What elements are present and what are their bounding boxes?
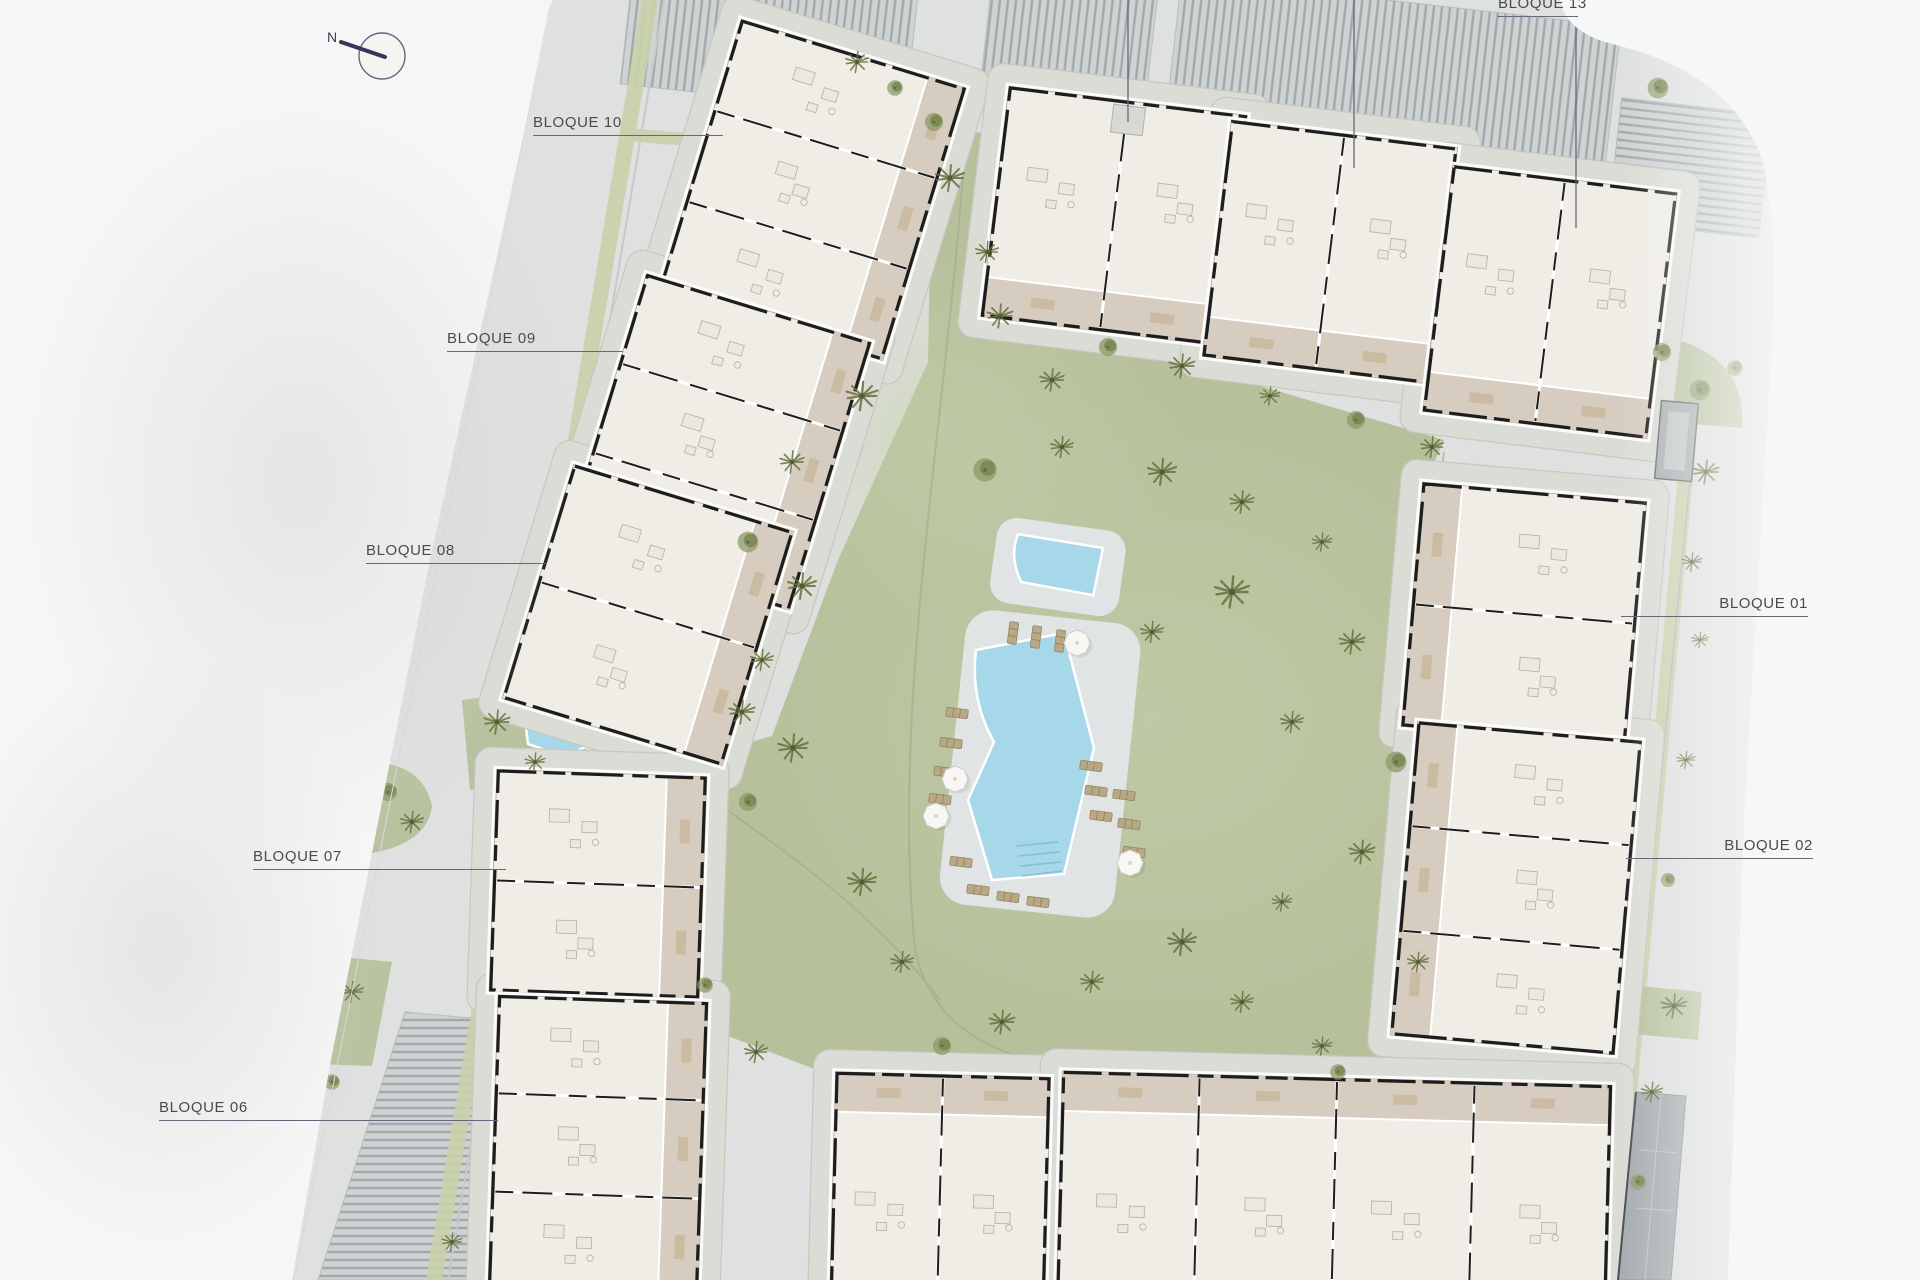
label-underline [1626,858,1813,859]
compass-north-label: N [327,29,338,45]
fade-east [1600,0,1920,1280]
building-building-south-2[interactable] [1054,1069,1614,1280]
building-bloque-06[interactable] [486,993,710,1280]
label-bloque-07[interactable]: BLOQUE 07 [253,848,506,870]
label-text: BLOQUE 10 [533,114,723,132]
label-underline [533,135,723,136]
label-underline [1621,616,1808,617]
label-bloque-09[interactable]: BLOQUE 09 [447,330,623,352]
label-text: BLOQUE 13 [1498,0,1578,13]
label-underline [1498,16,1578,17]
label-text: BLOQUE 08 [366,542,547,560]
label-bloque-06[interactable]: BLOQUE 06 [159,1099,498,1121]
label-bloque-02[interactable]: BLOQUE 02 [1626,837,1813,859]
label-bloque-13[interactable]: BLOQUE 13 [1498,0,1578,17]
label-underline [253,869,506,870]
site-plan-canvas: BLOQUE 10 BLOQUE 09 BLOQUE 08 BLOQUE 07 … [0,0,1920,1280]
label-bloque-10[interactable]: BLOQUE 10 [533,114,723,136]
label-text: BLOQUE 02 [1626,837,1813,855]
building-bloque-07[interactable] [487,767,709,1000]
label-underline [447,351,623,352]
label-text: BLOQUE 01 [1621,595,1808,613]
building-building-north-2[interactable] [1200,118,1460,386]
label-bloque-08[interactable]: BLOQUE 08 [366,542,547,564]
label-text: BLOQUE 07 [253,848,506,866]
label-underline [366,563,547,564]
building-building-south-1[interactable] [827,1070,1052,1280]
site-plan-svg [0,0,1920,1280]
label-text: BLOQUE 06 [159,1099,498,1117]
label-underline [159,1120,498,1121]
label-text: BLOQUE 09 [447,330,623,348]
label-bloque-01[interactable]: BLOQUE 01 [1621,595,1808,617]
